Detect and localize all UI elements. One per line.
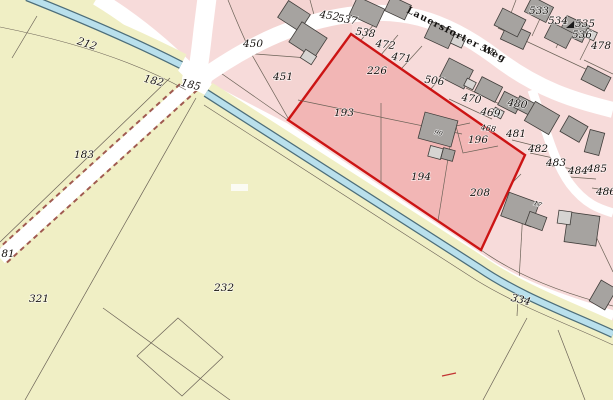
map-canvas[interactable]: 4504514525375384724715062261931941962084… (0, 0, 613, 400)
parcel-label-194: 194 (411, 171, 431, 183)
building-annex (557, 210, 572, 225)
parcel-label-485: 485 (586, 163, 607, 175)
parcel-label-451: 451 (272, 71, 293, 83)
parcel-label-533: 533 (529, 5, 549, 17)
parcel-label-81: 81 (1, 248, 14, 260)
parcel-label-183: 183 (74, 149, 94, 161)
parcel-label-536: 536 (572, 29, 592, 41)
parcel-label-484: 484 (567, 165, 588, 177)
parcel-label-226: 226 (366, 65, 387, 77)
parcel-label-478: 478 (590, 40, 611, 52)
map-viewport: 4504514525375384724715062261931941962084… (0, 0, 613, 400)
parcel-label-208: 208 (469, 187, 490, 199)
parcel-label-486: 486 (595, 186, 613, 198)
parcel-label-534: 534 (548, 15, 568, 27)
parcel-label-321: 321 (29, 293, 49, 305)
parcel-label-196: 196 (468, 134, 488, 146)
parcel-label-481: 481 (505, 128, 526, 140)
parcel-label-482: 482 (527, 143, 548, 155)
parcel-label-450: 450 (242, 38, 263, 50)
field-patch (231, 184, 248, 191)
road-north-stub (197, 0, 207, 76)
parcel-label-483: 483 (545, 157, 566, 169)
parcel-label-232: 232 (213, 282, 234, 294)
parcel-label-193: 193 (334, 107, 354, 119)
